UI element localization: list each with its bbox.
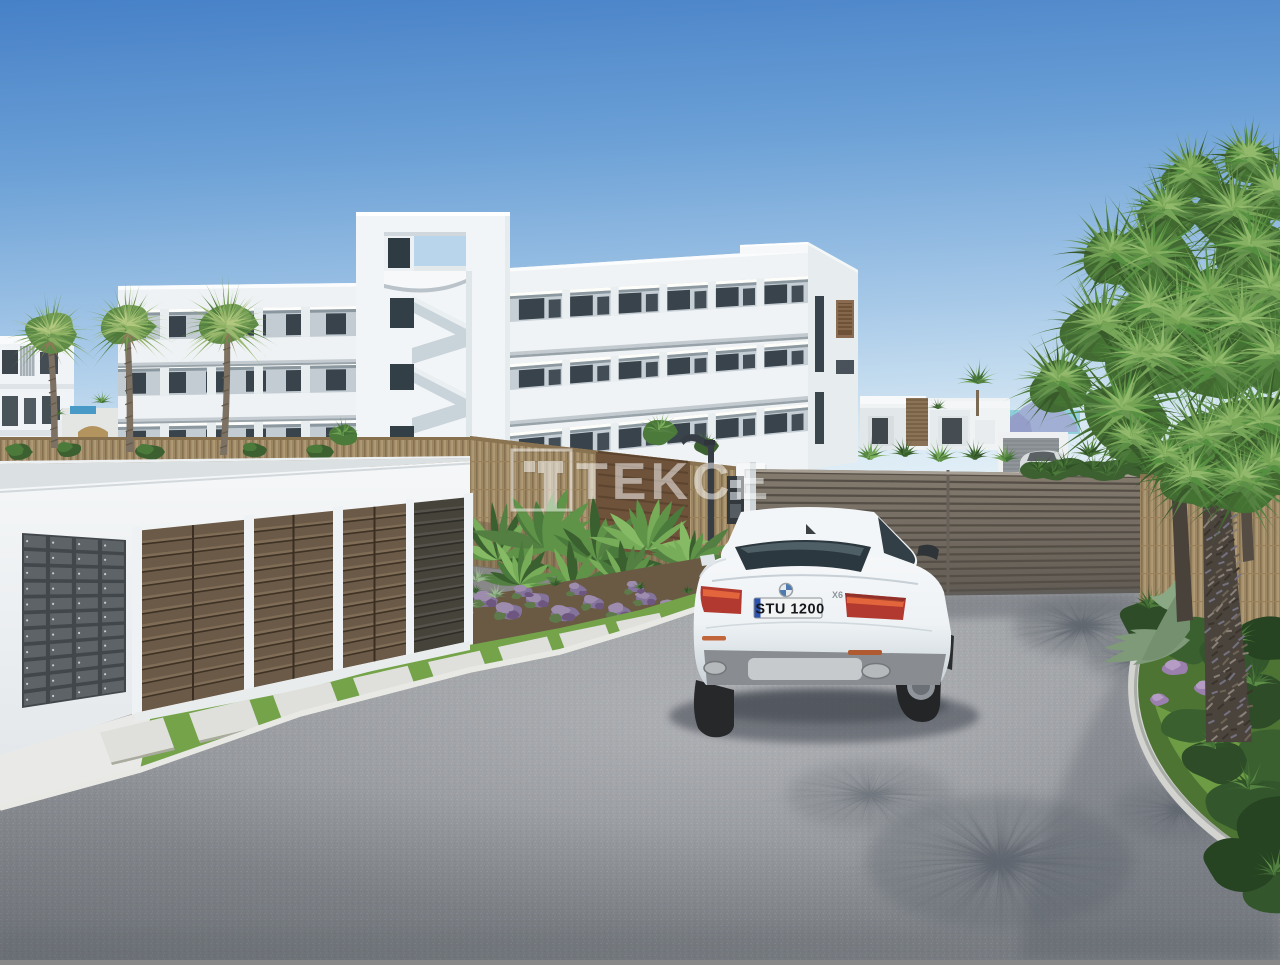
svg-text:STU 1200: STU 1200 [755, 602, 824, 618]
svg-text:X6: X6 [832, 590, 843, 600]
svg-text:TEKCE: TEKCE [576, 453, 772, 511]
